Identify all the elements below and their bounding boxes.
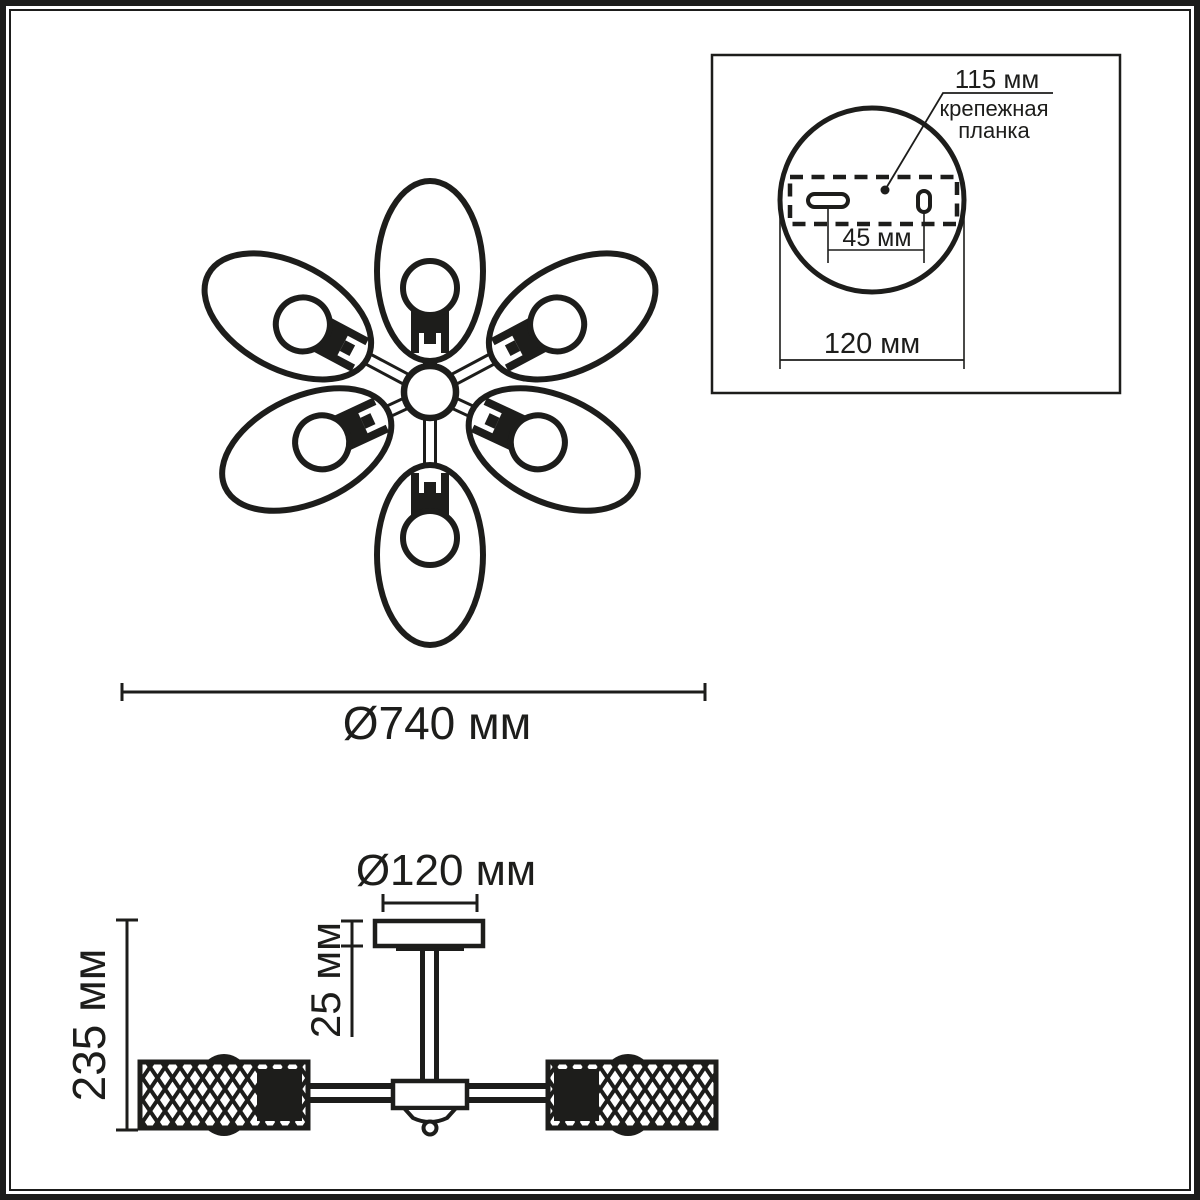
mount-slot-vertical bbox=[918, 191, 930, 212]
canopy-height-dimension: 25 мм bbox=[302, 921, 363, 1038]
plate-leader-dot bbox=[881, 186, 890, 195]
overall-height-label: 235 мм bbox=[63, 949, 115, 1102]
side-view-left-shade bbox=[140, 1054, 308, 1136]
top-view-diameter-label: Ø740 мм bbox=[343, 697, 532, 749]
mount-slot-horizontal bbox=[808, 194, 848, 207]
side-view: Ø120 мм 25 мм 235 мм bbox=[63, 846, 716, 1136]
dimension-diagram: Ø740 мм 115 мм крепежная планка 45 мм 12… bbox=[0, 0, 1200, 1200]
hole-spacing-label: 45 мм bbox=[842, 224, 911, 252]
canopy-height-label: 25 мм bbox=[302, 922, 349, 1038]
top-view-hub bbox=[404, 366, 456, 418]
canopy-diameter-label: Ø120 мм bbox=[356, 846, 536, 895]
overall-height-dimension: 235 мм bbox=[63, 920, 138, 1130]
base-diameter-label: 120 мм bbox=[824, 328, 920, 360]
top-view-petal-bottom bbox=[377, 410, 483, 645]
plate-caption-line2: планка bbox=[958, 118, 1030, 143]
plate-length-label: 115 мм bbox=[955, 64, 1039, 94]
side-view-stem bbox=[396, 944, 464, 1084]
side-view-canopy bbox=[375, 921, 483, 946]
top-view-petal-top bbox=[377, 181, 483, 374]
side-view-right-shade bbox=[548, 1054, 716, 1136]
top-view bbox=[183, 181, 676, 645]
canopy-diameter-dimension: Ø120 мм bbox=[356, 846, 536, 912]
side-view-finial-ball bbox=[424, 1122, 437, 1135]
top-view-diameter-dimension: Ø740 мм bbox=[122, 683, 705, 749]
side-view-hub bbox=[393, 1081, 467, 1108]
mount-inset: 115 мм крепежная планка 45 мм 120 мм bbox=[712, 55, 1120, 393]
